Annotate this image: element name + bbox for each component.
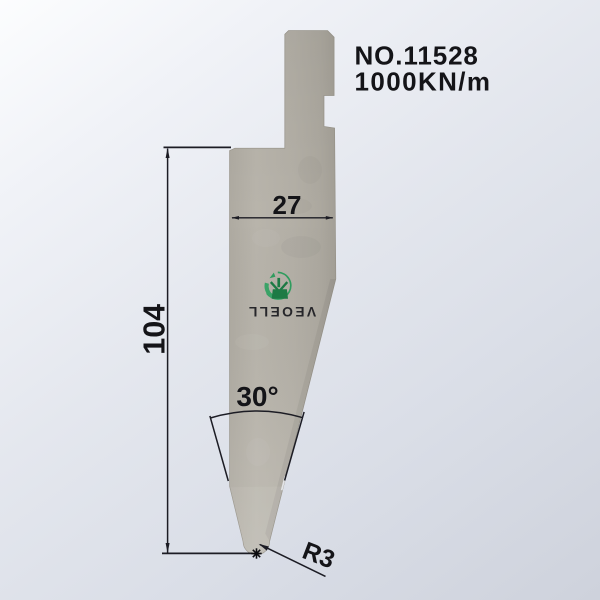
svg-text:30°: 30° bbox=[236, 381, 278, 412]
svg-text:27: 27 bbox=[273, 190, 302, 220]
svg-text:104: 104 bbox=[137, 304, 171, 355]
svg-text:1000KN/m: 1000KN/m bbox=[355, 67, 492, 97]
svg-text:VEOELL: VEOELL bbox=[246, 304, 316, 319]
svg-text:R3: R3 bbox=[299, 537, 339, 575]
